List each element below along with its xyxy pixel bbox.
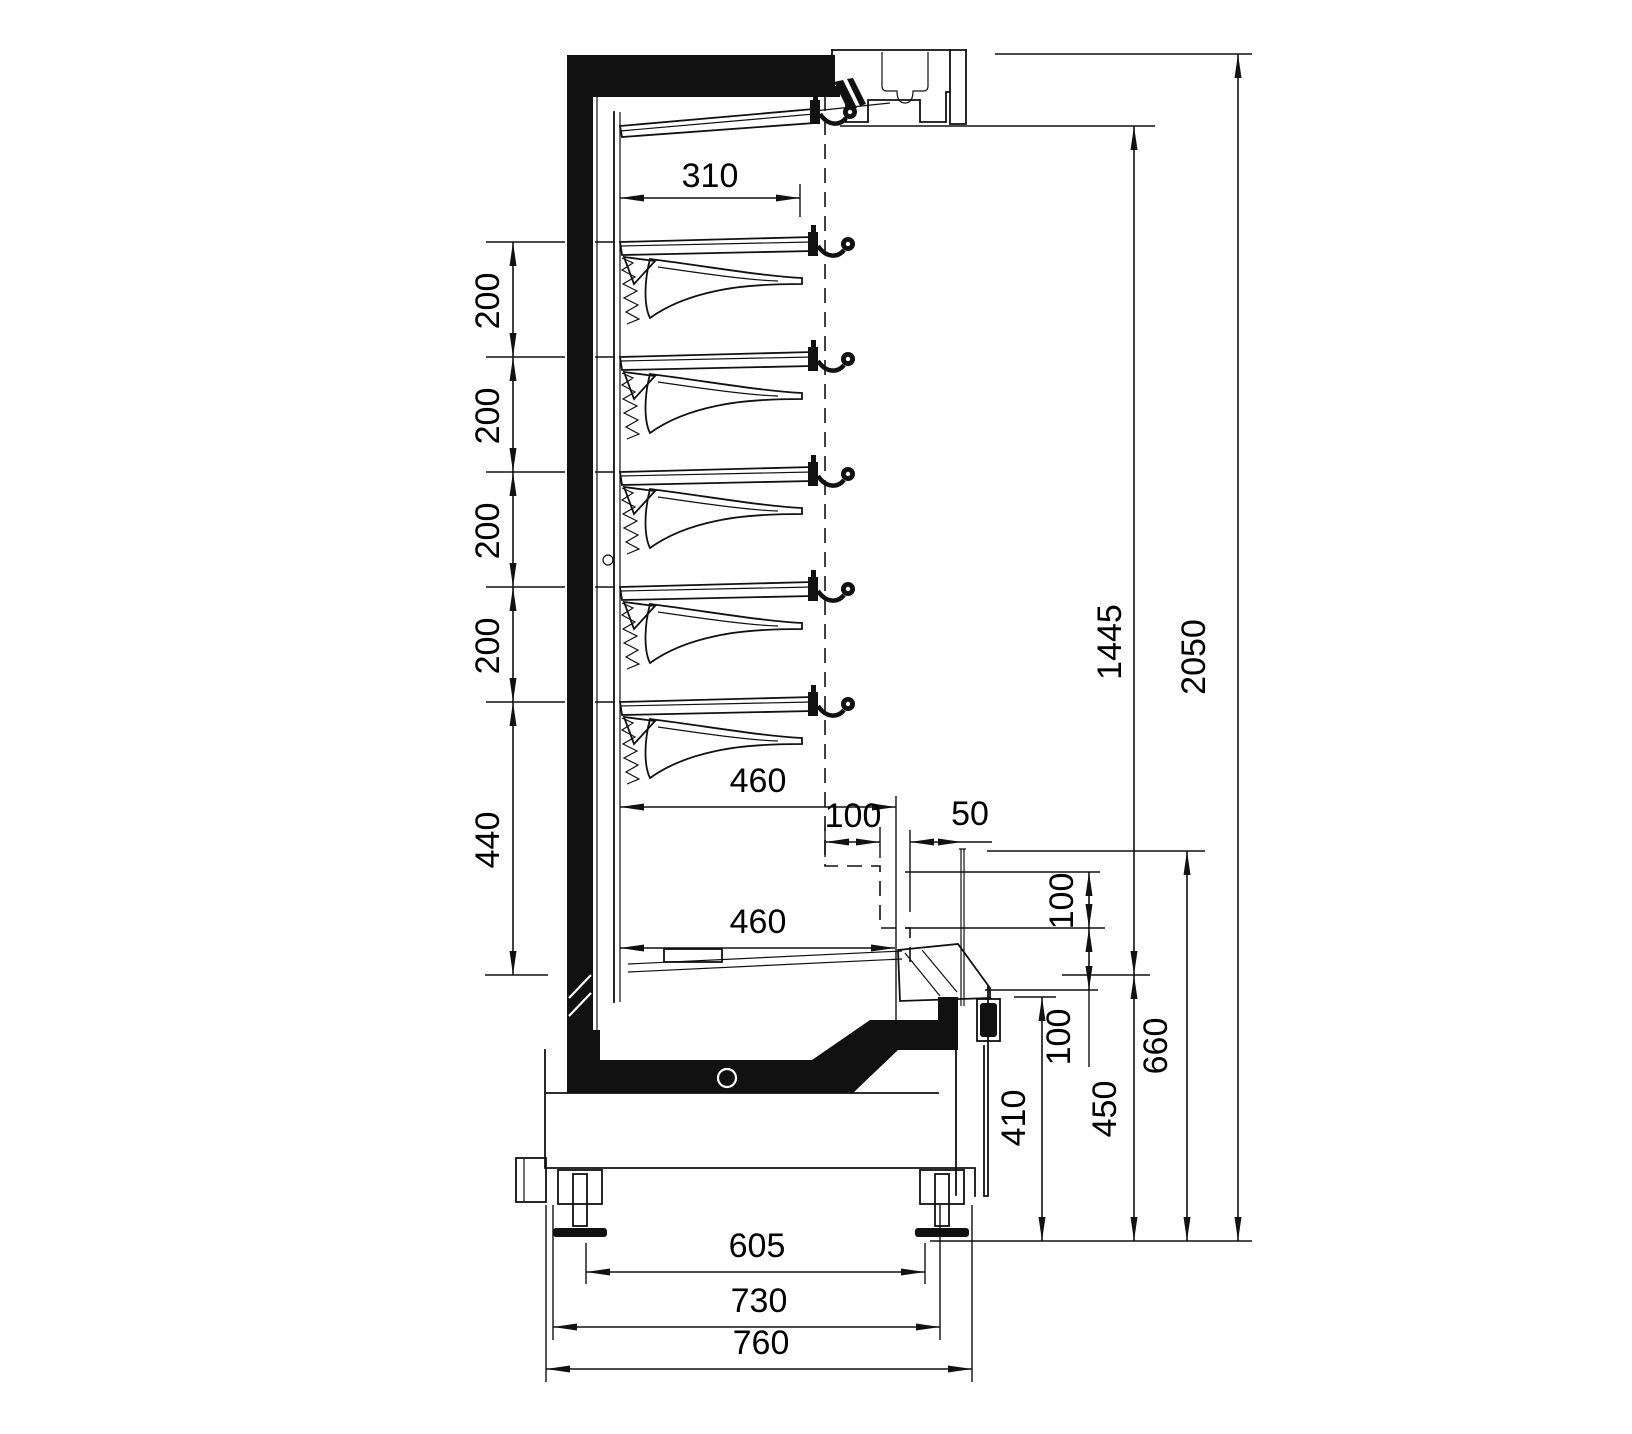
dim-760-label: 760 (733, 1324, 790, 1362)
dim-200-label-2: 200 (469, 388, 507, 445)
dim-460-upper-label: 460 (730, 762, 787, 800)
reference-lines (546, 54, 1252, 1382)
shelf-4 (620, 570, 855, 669)
dim-450-label: 450 (1086, 1081, 1124, 1138)
front-panel (956, 986, 1000, 1196)
lamp-cove (882, 52, 928, 103)
cabinet-structure (516, 50, 1000, 1237)
canopy-fascia (816, 50, 966, 124)
dim-310-label: 310 (682, 157, 739, 195)
dim-200-label-1: 200 (469, 273, 507, 330)
panel-hole (603, 555, 613, 565)
shelf-2 (620, 340, 855, 439)
rear-spacer (516, 1158, 546, 1202)
front-bumper (980, 1003, 997, 1037)
dim-730-label: 730 (731, 1282, 788, 1320)
dim-100-step-label: 100 (825, 797, 882, 835)
back-panel (567, 55, 593, 1030)
dim-200-label-4: 200 (469, 618, 507, 675)
dim-460-lower-label: 460 (730, 903, 787, 941)
load-limit-dashed-line (825, 96, 910, 966)
top-canopy-bar (567, 55, 835, 88)
rear-foot (553, 1170, 607, 1237)
front-foot (915, 1170, 969, 1237)
bottom-shelf-deck (628, 944, 990, 1001)
dim-100-right-lower-label: 100 (1040, 1009, 1078, 1066)
dim-1445-label: 1445 (1091, 604, 1129, 680)
dim-410-label: 410 (995, 1090, 1033, 1147)
dim-605-label: 605 (729, 1227, 786, 1265)
dim-2050-label: 2050 (1175, 619, 1213, 695)
shelf-1 (620, 225, 855, 324)
cabinet-cross-section: 310 200 200 200 200 440 460 100 50 460 1… (0, 0, 1632, 1434)
dim-440-label: 440 (469, 812, 507, 869)
dim-200-label-3: 200 (469, 503, 507, 560)
dim-100-right-upper-label: 100 (1043, 873, 1081, 930)
dim-50-label: 50 (951, 795, 989, 833)
bottom-air-duct (567, 997, 958, 1093)
dim-660-label: 660 (1137, 1018, 1175, 1075)
technical-drawing: 310 200 200 200 200 440 460 100 50 460 1… (0, 0, 1632, 1434)
shelf-3 (620, 455, 855, 554)
